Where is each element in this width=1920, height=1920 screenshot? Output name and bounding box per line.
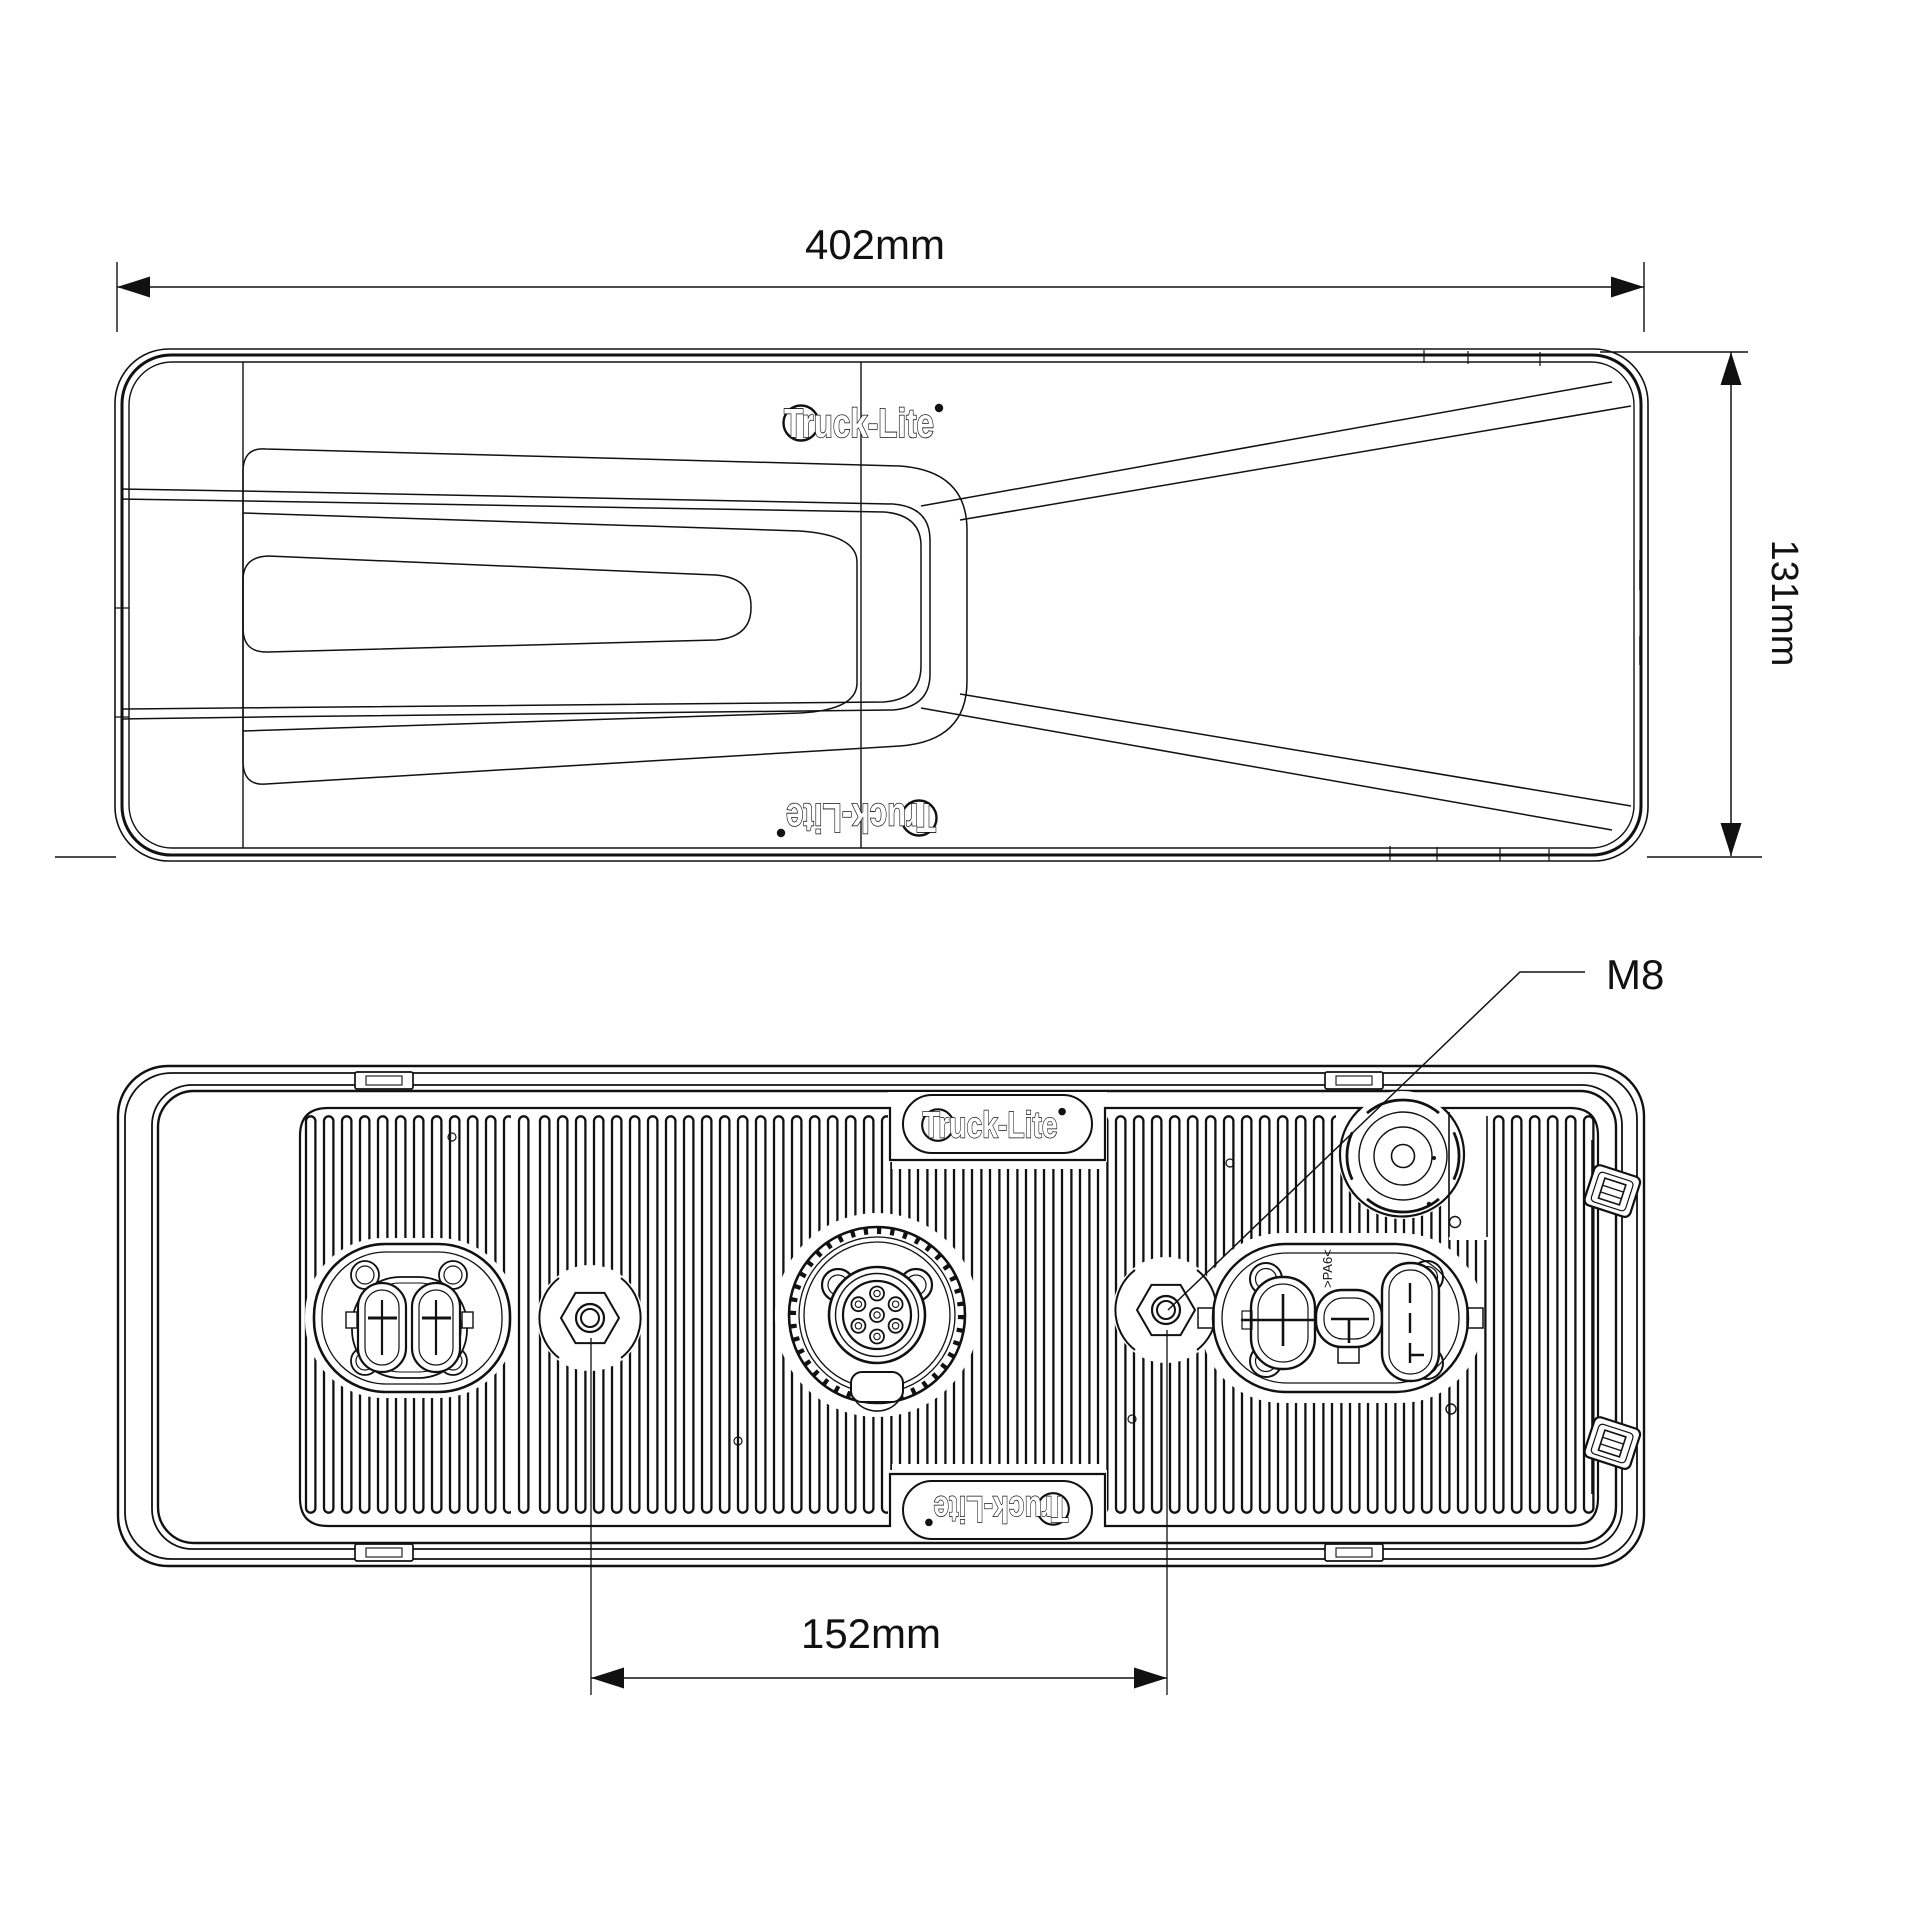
svg-text:402mm: 402mm <box>805 221 945 268</box>
svg-text:131mm: 131mm <box>1763 540 1805 667</box>
svg-text:152mm: 152mm <box>801 1610 941 1657</box>
svg-text:Truck-Lite: Truck-Lite <box>923 1105 1058 1146</box>
svg-text:Truck-Lite: Truck-Lite <box>786 795 936 841</box>
svg-text:Truck-Lite: Truck-Lite <box>933 1488 1068 1529</box>
svg-text:>PA6<: >PA6< <box>1320 1249 1335 1288</box>
svg-text:Truck-Lite: Truck-Lite <box>784 400 934 446</box>
svg-text:M8: M8 <box>1606 951 1664 998</box>
